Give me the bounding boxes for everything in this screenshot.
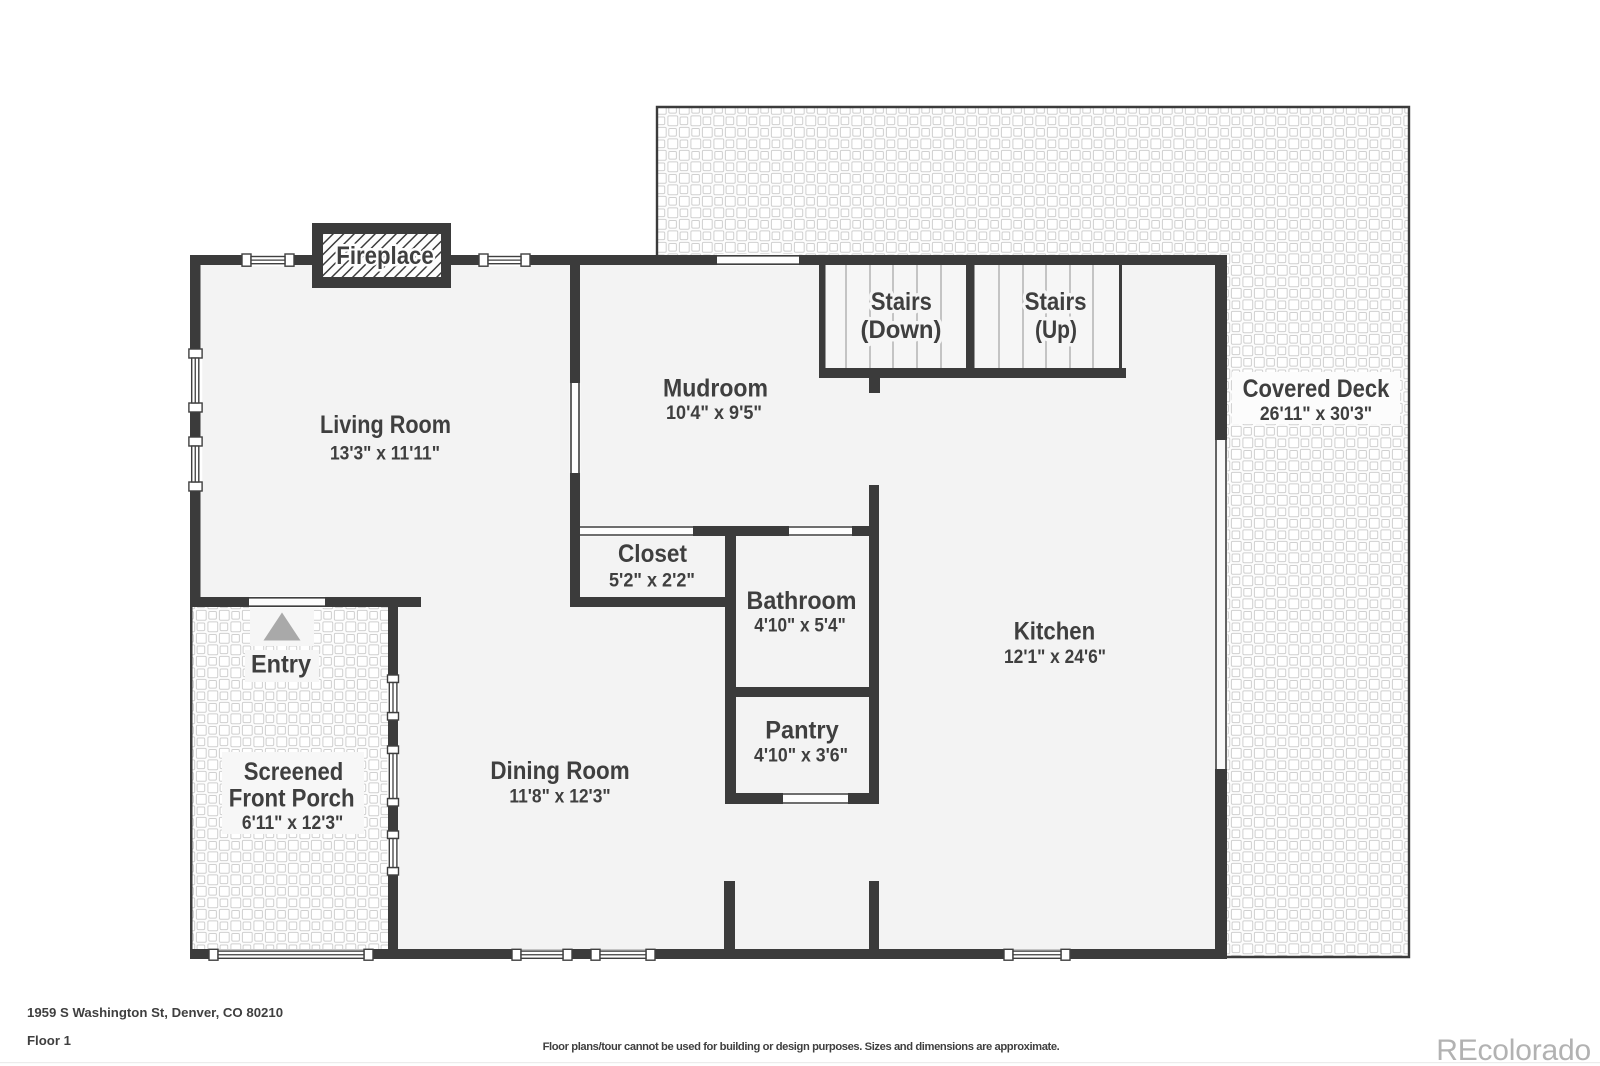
svg-text:Pantry: Pantry	[765, 717, 839, 745]
svg-text:(Up): (Up)	[1035, 316, 1077, 344]
svg-text:12'1" x 24'6": 12'1" x 24'6"	[1004, 647, 1106, 668]
svg-text:11'8" x 12'3": 11'8" x 12'3"	[509, 787, 610, 808]
svg-text:Mudroom: Mudroom	[663, 375, 768, 403]
svg-text:Covered Deck: Covered Deck	[1243, 375, 1390, 403]
svg-text:Living Room: Living Room	[320, 411, 451, 439]
svg-text:Front Porch: Front Porch	[229, 785, 355, 813]
svg-text:REcolorado: REcolorado	[1436, 1034, 1591, 1066]
svg-text:4'10" x 3'6": 4'10" x 3'6"	[754, 746, 848, 767]
svg-text:Stairs: Stairs	[1025, 288, 1087, 316]
svg-text:5'2" x 2'2": 5'2" x 2'2"	[609, 571, 695, 592]
svg-text:Floor plans/tour cannot be use: Floor plans/tour cannot be used for buil…	[543, 1041, 1060, 1053]
svg-text:Floor 1: Floor 1	[27, 1033, 71, 1048]
svg-text:1959 S Washington St, Denver,: 1959 S Washington St, Denver, CO 80210	[27, 1005, 283, 1020]
svg-text:Stairs: Stairs	[871, 288, 932, 316]
svg-text:13'3" x 11'11": 13'3" x 11'11"	[330, 444, 440, 465]
svg-text:Kitchen: Kitchen	[1014, 618, 1096, 646]
svg-text:Entry: Entry	[251, 651, 311, 679]
svg-text:Dining Room: Dining Room	[490, 757, 629, 785]
svg-text:10'4" x 9'5": 10'4" x 9'5"	[666, 403, 762, 424]
svg-text:(Down): (Down)	[861, 316, 942, 344]
svg-text:Closet: Closet	[618, 540, 688, 568]
svg-text:Bathroom: Bathroom	[747, 587, 857, 615]
svg-text:Screened: Screened	[244, 758, 344, 786]
svg-text:6'11" x 12'3": 6'11" x 12'3"	[242, 813, 343, 834]
svg-text:Fireplace: Fireplace	[336, 242, 434, 270]
svg-text:26'11" x 30'3": 26'11" x 30'3"	[1260, 404, 1372, 425]
svg-text:4'10" x 5'4": 4'10" x 5'4"	[754, 616, 846, 637]
